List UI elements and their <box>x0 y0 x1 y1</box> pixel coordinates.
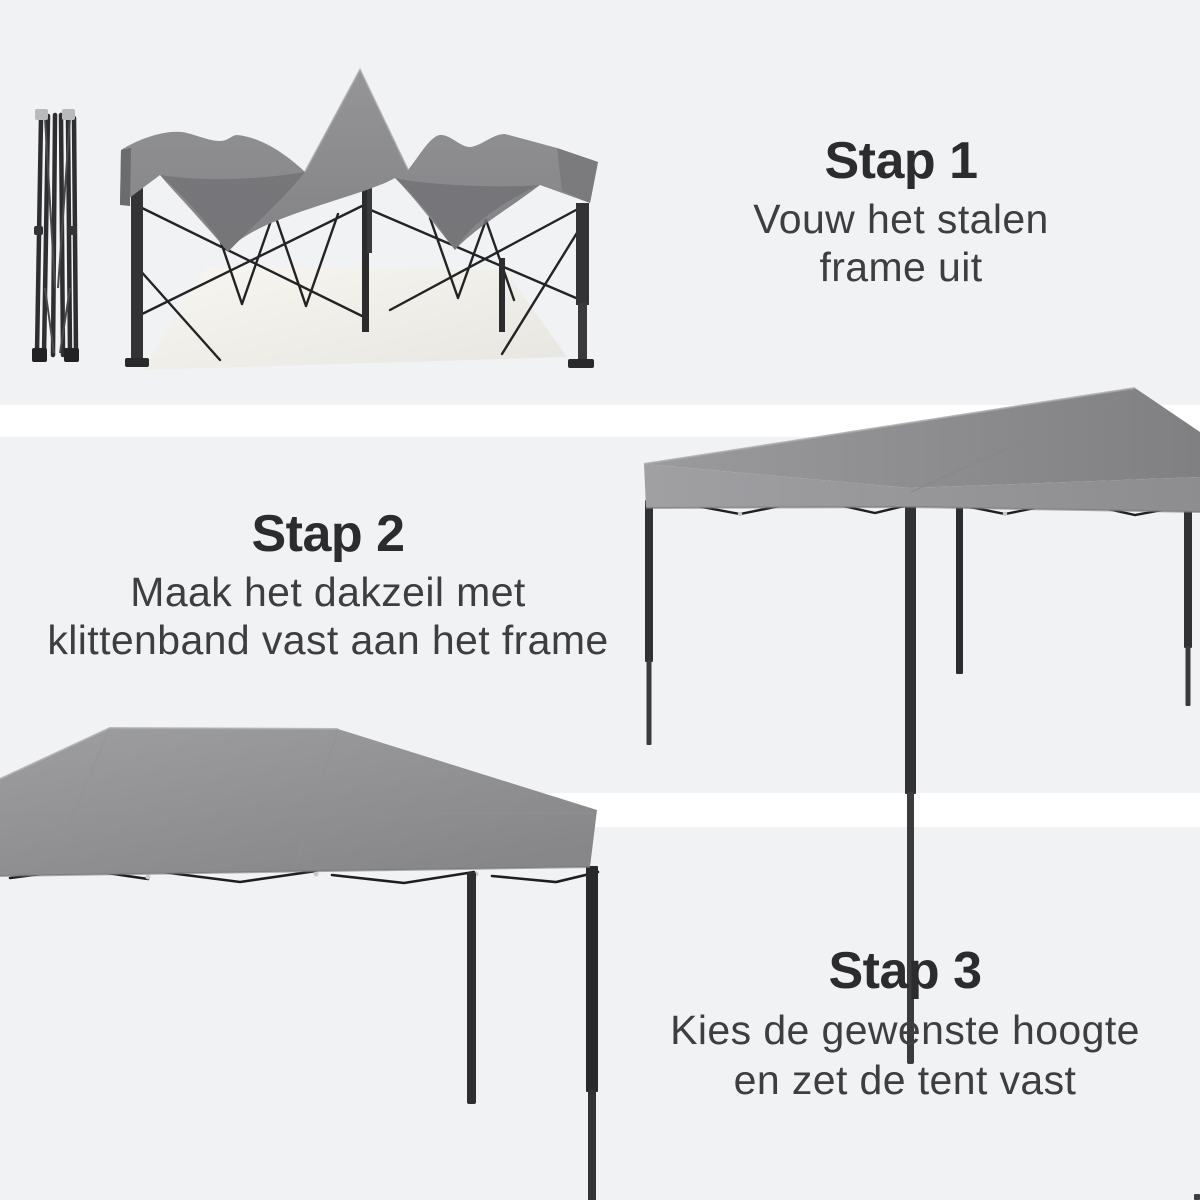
step1-line2: frame uit <box>819 244 982 290</box>
partial-image-corner <box>1194 1194 1200 1200</box>
step1-product-image <box>10 58 630 403</box>
step3-title: Stap 3 <box>670 943 1140 999</box>
draped-canopy <box>120 70 598 252</box>
step3-line1: Kies de gewenste hoogte <box>670 1007 1140 1053</box>
step1-text-block: Stap 1 Vouw het stalen frame uit <box>753 133 1048 291</box>
step1-title: Stap 1 <box>753 133 1048 189</box>
step3-description: Kies de gewenste hoogte en zet de tent v… <box>670 1005 1140 1105</box>
folded-frame-icon <box>32 109 79 362</box>
step1-line1: Vouw het stalen <box>753 196 1048 242</box>
step3-product-image <box>0 690 620 1200</box>
step3-text-block: Stap 3 Kies de gewenste hoogte en zet de… <box>670 943 1140 1105</box>
canopy-legs <box>467 866 598 1200</box>
instruction-sheet: Stap 1 Vouw het stalen frame uit Stap 2 … <box>0 0 1200 1200</box>
step2-title: Stap 2 <box>47 506 608 562</box>
step2-line2: klittenband vast aan het frame <box>47 617 608 663</box>
canopy-closeup-icon <box>0 728 598 1200</box>
canopy-roof <box>0 728 597 876</box>
step1-description: Vouw het stalen frame uit <box>753 195 1048 291</box>
open-frame-with-canvas-icon <box>120 70 598 370</box>
step2-description: Maak het dakzeil met klittenband vast aa… <box>47 568 608 664</box>
step2-text-block: Stap 2 Maak het dakzeil met klittenband … <box>47 506 608 664</box>
step3-line2: en zet de tent vast <box>734 1057 1077 1103</box>
step2-line1: Maak het dakzeil met <box>130 569 525 615</box>
